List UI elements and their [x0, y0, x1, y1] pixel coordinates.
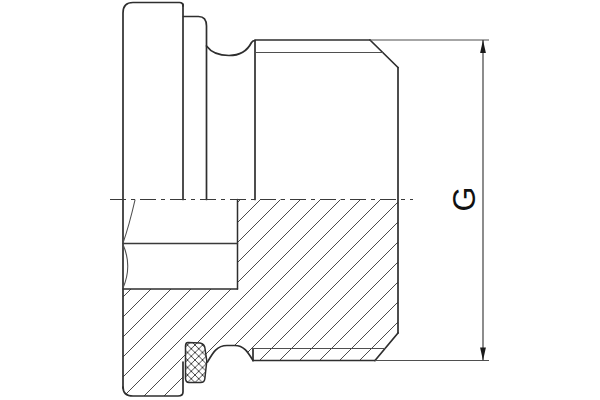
dimension-label: G — [446, 187, 482, 212]
thread-end-chamfer-top — [370, 40, 398, 68]
seal-rim-top-edge — [184, 17, 207, 200]
arrowhead-up-icon — [480, 40, 486, 53]
seal-cross-section — [186, 343, 207, 383]
technical-drawing-canvas: G — [0, 0, 600, 400]
arrowhead-down-icon — [480, 348, 486, 361]
metal-section-hatching — [123, 200, 398, 397]
plug-section-drawing: G — [0, 0, 600, 400]
neck-groove-top-curve — [207, 41, 256, 56]
seal-region — [186, 343, 207, 383]
metal-section-region — [123, 200, 398, 397]
hex-socket-corner-arc-upper — [123, 200, 135, 243]
